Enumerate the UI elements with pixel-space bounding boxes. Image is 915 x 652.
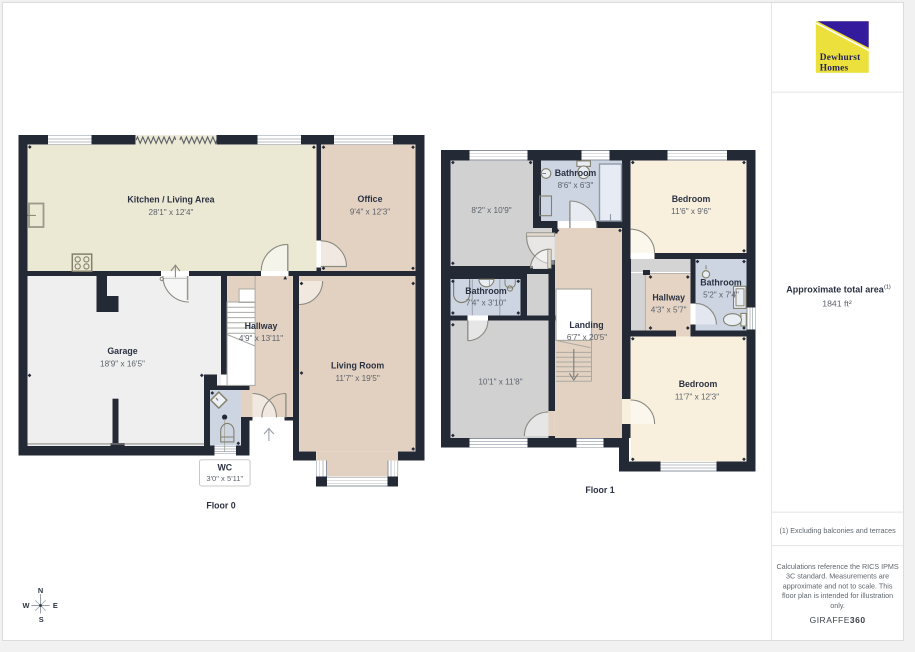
svg-text:Approximate total area: Approximate total area (786, 285, 885, 295)
svg-text:Bathroom: Bathroom (465, 286, 507, 296)
svg-text:4'9" x 13'11": 4'9" x 13'11" (239, 334, 283, 343)
svg-text:Landing: Landing (569, 320, 603, 330)
svg-text:Bedroom: Bedroom (672, 194, 711, 204)
svg-text:S: S (39, 615, 44, 624)
svg-text:3'0" x 5'11": 3'0" x 5'11" (206, 474, 243, 483)
svg-text:Homes: Homes (820, 64, 849, 74)
svg-text:(1) Excluding balconies and te: (1) Excluding balconies and terraces (779, 526, 896, 535)
svg-text:4'3" x 5'7": 4'3" x 5'7" (651, 305, 687, 314)
svg-text:3C standard. Measurements are: 3C standard. Measurements are (786, 572, 889, 581)
svg-text:1841 ft²: 1841 ft² (822, 299, 852, 309)
svg-text:Bathroom: Bathroom (555, 168, 597, 178)
svg-text:Hallway: Hallway (245, 321, 278, 331)
svg-text:8'6" x 6'3": 8'6" x 6'3" (558, 181, 594, 190)
svg-text:W: W (23, 601, 30, 610)
svg-text:Office: Office (358, 194, 383, 204)
svg-text:(1): (1) (884, 285, 891, 291)
svg-text:Dewhurst: Dewhurst (820, 53, 861, 63)
svg-text:5'2" x 7'4": 5'2" x 7'4" (703, 291, 739, 300)
svg-text:18'9" x 16'5": 18'9" x 16'5" (100, 360, 145, 369)
svg-text:approximate and not to scale.: approximate and not to scale. This (783, 581, 893, 590)
svg-text:Bathroom: Bathroom (700, 278, 742, 288)
svg-text:Calculations reference the RIC: Calculations reference the RICS IPMS (776, 562, 898, 571)
svg-text:E: E (53, 601, 58, 610)
svg-text:7'4" x 3'10": 7'4" x 3'10" (466, 299, 506, 308)
svg-text:Kitchen / Living Area: Kitchen / Living Area (127, 195, 214, 205)
svg-text:N: N (38, 586, 43, 595)
svg-text:Floor 0: Floor 0 (206, 501, 235, 511)
svg-text:9'4" x 12'3": 9'4" x 12'3" (350, 207, 390, 216)
svg-text:11'7" x 19'5": 11'7" x 19'5" (335, 374, 379, 383)
svg-text:11'6" x 9'6": 11'6" x 9'6" (671, 207, 711, 216)
svg-text:floor plan is intended for ill: floor plan is intended for illustration (782, 591, 893, 600)
svg-text:Bedroom: Bedroom (679, 379, 718, 389)
svg-text:10'1" x 11'8": 10'1" x 11'8" (478, 378, 522, 387)
svg-text:GIRAFFE360: GIRAFFE360 (810, 615, 866, 625)
svg-text:11'7" x 12'3": 11'7" x 12'3" (675, 392, 719, 401)
svg-text:Hallway: Hallway (652, 292, 685, 302)
svg-text:only.: only. (830, 601, 845, 610)
svg-text:28'1" x 12'4": 28'1" x 12'4" (149, 208, 194, 217)
svg-text:Garage: Garage (107, 346, 137, 356)
svg-text:WC: WC (217, 463, 232, 473)
svg-text:6'7" x 20'5": 6'7" x 20'5" (567, 333, 607, 342)
svg-text:Living Room: Living Room (331, 361, 384, 371)
svg-text:Floor 1: Floor 1 (585, 485, 614, 495)
svg-text:8'2" x 10'9": 8'2" x 10'9" (471, 206, 511, 215)
